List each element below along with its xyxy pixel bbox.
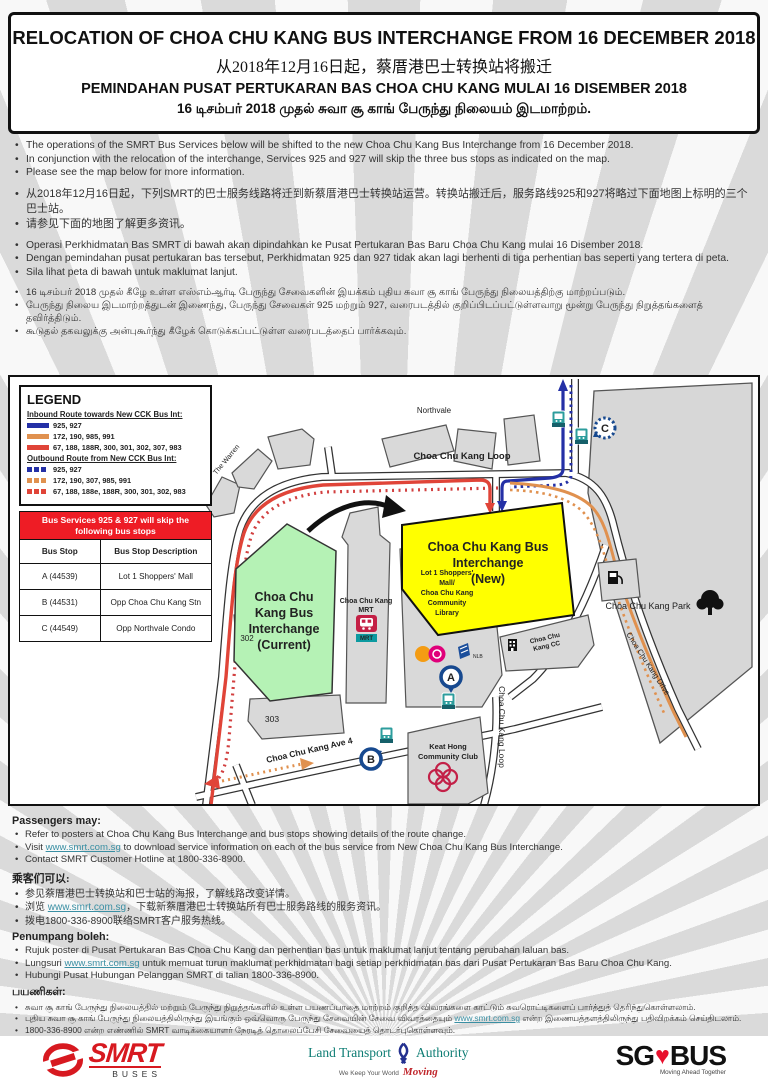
smrt-link[interactable]: www.smrt.com.sg — [454, 1013, 520, 1023]
bullet: In conjunction with the relocation of th… — [12, 153, 758, 167]
svg-text:Interchange: Interchange — [249, 622, 320, 636]
passengers-english: Refer to posters at Choa Chu Kang Bus In… — [12, 829, 758, 867]
passengers-heading-chinese: 乘客们可以: — [12, 870, 758, 886]
footer: SMRT BUSES Land Transport Authority We K… — [0, 1036, 768, 1083]
nlb-label: NLB — [473, 654, 483, 660]
svg-text:B: B — [367, 754, 375, 766]
legend-title: LEGEND — [27, 392, 204, 407]
svg-text:Community: Community — [428, 600, 467, 607]
skip-stops-table: Bus Stop Bus Stop Description A (44539) … — [19, 539, 212, 642]
bus-stop-icon — [575, 428, 588, 444]
svg-text:C: C — [601, 423, 609, 435]
lot1-logo2-icon — [429, 646, 446, 663]
bullet: Please see the map below for more inform… — [12, 166, 758, 180]
blue-arrow-up — [558, 379, 568, 391]
title-tamil: 16 டிசம்பர் 2018 முதல் சுவா சூ காங் பேரு… — [11, 101, 757, 119]
svg-text:Community Club: Community Club — [418, 752, 478, 761]
cc-building-icon — [508, 639, 517, 651]
lta-name-left: Land Transport — [308, 1045, 391, 1061]
svg-text:Library: Library — [435, 610, 459, 617]
bullet: 从2018年12月16日起，下列SMRT的巴士服务线路将迁到新蔡厝港巴士转换站运… — [12, 187, 758, 217]
passengers-heading-english: Passengers may: — [12, 815, 758, 827]
bullet: கூடுதல் தகவலுக்கு அன்புகூர்ந்து கீழேக் க… — [12, 325, 758, 338]
passengers-chinese: 参见蔡厝港巴士转换站和巴士站的海报，了解线路改变详情。 浏览 www.smrt.… — [12, 888, 758, 929]
mrt-building — [342, 507, 390, 703]
petrol-station — [598, 559, 640, 601]
bullet: Rujuk poster di Pusat Pertukaran Bas Cho… — [12, 945, 758, 958]
svg-text:Choa Chu Kang: Choa Chu Kang — [421, 590, 474, 597]
svg-text:A: A — [447, 672, 455, 684]
label-northvale: Northvale — [417, 406, 452, 415]
title-english: RELOCATION OF CHOA CHU KANG BUS INTERCHA… — [11, 27, 757, 49]
svg-text:Lot 1 Shoppers': Lot 1 Shoppers' — [421, 570, 474, 577]
bullet: 16 டிசம்பர் 2018 முதல் கீழே உள்ள எஸ்எம்ஆ… — [12, 286, 758, 299]
sgbus-logo: SG ♥ BUS Moving Ahead Together — [616, 1043, 726, 1076]
sgbus-tagline: Moving Ahead Together — [660, 1069, 726, 1076]
intro-chinese: 从2018年12月16日起，下列SMRT的巴士服务线路将迁到新蔡厝港巴士转换站运… — [12, 187, 758, 232]
legend-row: 172, 190, 307, 985, 991 — [27, 476, 204, 485]
legend-row: 925, 927 — [27, 421, 204, 430]
bullet: Contact SMRT Customer Hotline at 1800-33… — [12, 854, 758, 867]
legend-row: 67, 188, 188e, 188R, 300, 301, 302, 983 — [27, 487, 204, 496]
smrt-link[interactable]: www.smrt.com.sg — [46, 842, 121, 853]
skip-stops-panel: Bus Services 925 & 927 will skip the fol… — [19, 511, 212, 642]
smrt-link[interactable]: www.smrt.com.sg — [64, 958, 139, 969]
svg-text:(New): (New) — [471, 572, 505, 586]
relocation-arrow-head — [382, 495, 406, 518]
legend-outbound-heading: Outbound Route from New CCK Bus Int: — [27, 454, 204, 463]
bullet: 拨电1800-336-8900联络SMRT客户服务热线。 — [12, 915, 758, 929]
col-description: Bus Stop Description — [100, 540, 211, 564]
legend-inbound-heading: Inbound Route towards New CCK Bus Int: — [27, 410, 204, 419]
passengers-tamil: சுவா சூ காங் பேருந்து நிலையத்தில் மற்றும… — [12, 1002, 758, 1037]
building-303 — [248, 695, 344, 739]
table-header-row: Bus Stop Bus Stop Description — [20, 540, 212, 564]
bullet: 浏览 www.smrt.com.sg，下载新蔡厝港巴士转换站所有巴士服务路线的服… — [12, 901, 758, 915]
label-park: Choa Chu Kang Park — [605, 601, 691, 611]
smrt-link[interactable]: www.smrt.com.sg — [48, 902, 126, 913]
title-box: RELOCATION OF CHOA CHU KANG BUS INTERCHA… — [8, 12, 760, 134]
title-malay: PEMINDAHAN PUSAT PERTUKARAN BAS CHOA CHU… — [11, 81, 757, 97]
lta-tagline: We Keep Your World — [339, 1070, 399, 1077]
smrt-wordmark: SMRT — [88, 1040, 163, 1066]
label-loop-top: Choa Chu Kang Loop — [413, 451, 510, 462]
lta-logo: Land Transport Authority We Keep Your Wo… — [308, 1041, 468, 1078]
legend-row: 925, 927 — [27, 465, 204, 474]
svg-text:MRT: MRT — [360, 636, 373, 642]
route-swatch-orange — [27, 434, 49, 439]
route-swatch-red — [27, 445, 49, 450]
lta-tagline-accent: Moving — [403, 1066, 438, 1078]
sgbus-sg: SG — [616, 1043, 654, 1069]
label-ave4: Choa Chu Kang Ave 4 — [265, 735, 353, 765]
svg-text:Choa Chu: Choa Chu — [254, 590, 313, 604]
lta-ribbon-icon — [395, 1041, 412, 1065]
route-swatch-red-dashed — [27, 489, 49, 494]
table-row: C (44549) Opp Northvale Condo — [20, 616, 212, 642]
bus-stop-icon — [442, 693, 455, 709]
svg-text:Choa Chu Kang: Choa Chu Kang — [340, 598, 393, 605]
passengers-heading-malay: Penumpang boleh: — [12, 931, 758, 943]
bullet: புதிய சுவா சூ காங் பேருந்து நிலையத்திலிர… — [12, 1013, 758, 1025]
bullet: Refer to posters at Choa Chu Kang Bus In… — [12, 829, 758, 842]
heart-icon: ♥ — [655, 1043, 669, 1069]
legend: LEGEND Inbound Route towards New CCK Bus… — [19, 385, 212, 506]
col-bus-stop: Bus Stop — [20, 540, 101, 564]
sgbus-bus: BUS — [670, 1043, 726, 1069]
mrt-station-icon: MRT — [356, 615, 377, 642]
intro-tamil: 16 டிசம்பர் 2018 முதல் கீழே உள்ள எஸ்எம்ஆ… — [12, 286, 758, 338]
title-chinese: 从2018年12月16日起，蔡厝港巴士转换站将搬迁 — [11, 53, 757, 77]
passengers-malay: Rujuk poster di Pusat Pertukaran Bas Cho… — [12, 945, 758, 983]
bullet: Sila lihat peta di bawah untuk maklumat … — [12, 266, 758, 280]
smrt-swoosh-icon — [42, 1043, 84, 1077]
map: NLB MRT — [8, 375, 760, 806]
bullet: The operations of the SMRT Bus Services … — [12, 139, 758, 153]
svg-text:Kang Bus: Kang Bus — [255, 606, 313, 620]
intro-malay: Operasi Perkhidmatan Bas SMRT di bawah a… — [12, 239, 758, 280]
svg-text:(Current): (Current) — [257, 638, 310, 652]
bus-stop-icon — [380, 727, 393, 743]
label-303: 303 — [265, 714, 279, 724]
bullet: Lungsuri www.smrt.com.sg untuk memuat tu… — [12, 958, 758, 971]
passengers-heading-tamil: பயணிகள்: — [12, 986, 758, 1000]
svg-text:Choa Chu Kang Bus: Choa Chu Kang Bus — [428, 540, 549, 554]
bullet: 请参见下面的地图了解更多资讯。 — [12, 217, 758, 232]
skip-stops-header: Bus Services 925 & 927 will skip the fol… — [19, 511, 212, 539]
bullet: சுவா சூ காங் பேருந்து நிலையத்தில் மற்றும… — [12, 1002, 758, 1014]
svg-text:Keat Hong: Keat Hong — [429, 742, 467, 751]
legend-row: 67, 188, 188R, 300, 301, 302, 307, 983 — [27, 443, 204, 452]
intro-english: The operations of the SMRT Bus Services … — [12, 139, 758, 180]
marker-b: B — [361, 749, 382, 769]
bullet: Operasi Perkhidmatan Bas SMRT di bawah a… — [12, 239, 758, 253]
bus-stop-icon — [552, 411, 565, 427]
poster: RELOCATION OF CHOA CHU KANG BUS INTERCHA… — [0, 0, 768, 1083]
bullet: பேருந்து நிலைய இடமாற்றத்துடன் இணைந்து, ப… — [12, 299, 758, 325]
lta-name-right: Authority — [416, 1045, 469, 1061]
bullet: 参见蔡厝港巴士转换站和巴士站的海报，了解线路改变详情。 — [12, 888, 758, 902]
bullet: Hubungi Pusat Hubungan Pelanggan SMRT di… — [12, 970, 758, 983]
legend-row: 172, 190, 985, 991 — [27, 432, 204, 441]
bullet: Visit www.smrt.com.sg to download servic… — [12, 842, 758, 855]
bullet: 1800-336-8900 என்ற எண்ணில் SMRT வாடிக்கை… — [12, 1025, 758, 1037]
bullet: Dengan pemindahan pusat pertukaran bas t… — [12, 252, 758, 266]
route-swatch-blue-dashed — [27, 467, 49, 472]
table-row: A (44539) Lot 1 Shoppers' Mall — [20, 564, 212, 590]
svg-text:Interchange: Interchange — [453, 556, 524, 570]
svg-text:MRT: MRT — [358, 607, 374, 614]
table-row: B (44531) Opp Choa Chu Kang Stn — [20, 590, 212, 616]
route-swatch-blue — [27, 423, 49, 428]
svg-text:Mall/: Mall/ — [439, 580, 455, 587]
intro-section: The operations of the SMRT Bus Services … — [12, 139, 758, 345]
label-loop-right: Choa Chu Kang Loop — [497, 686, 507, 768]
passenger-info-section: Passengers may: Refer to posters at Choa… — [12, 812, 758, 1038]
smrt-logo: SMRT BUSES — [42, 1040, 161, 1079]
route-swatch-orange-dashed — [27, 478, 49, 483]
